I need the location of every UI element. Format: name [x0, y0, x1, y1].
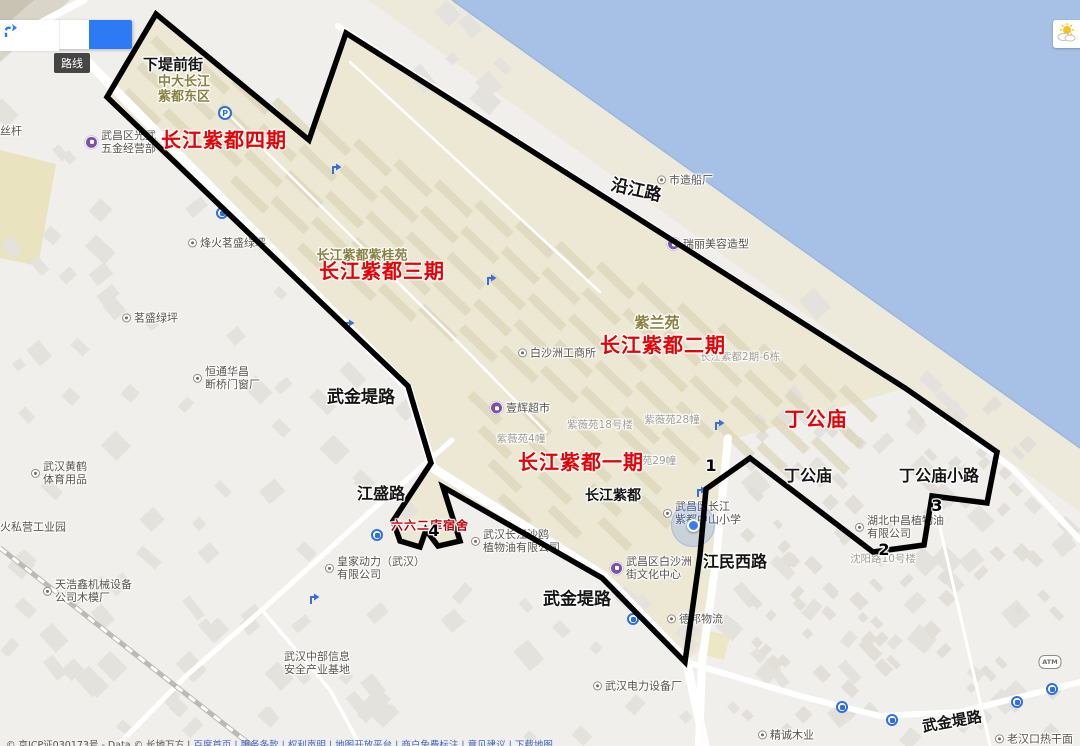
directions-tooltip: 路线 — [54, 53, 90, 73]
map-canvas[interactable]: 中大长江 紫都东区长江紫都紫桂苑紫兰苑长江紫都2期-6栋紫薇苑18号楼紫薇苑28… — [0, 0, 1080, 746]
search-bar — [0, 20, 132, 49]
boundary-annotation — [0, 0, 1080, 746]
weather-widget[interactable] — [1053, 20, 1080, 48]
map-attribution: © 京ICP证030173号 - Data © 长地万方 | 百度首页 | 服务… — [6, 737, 553, 746]
attribution-links[interactable]: 百度首页 | 服务条款 | 权利声明 | 地图开放平台 | 商户免费标注 | 意… — [193, 740, 552, 746]
copyright-text: © 京ICP证030173号 - Data © 长地万方 | — [6, 740, 190, 746]
search-button[interactable] — [89, 20, 132, 49]
directions-button[interactable] — [59, 20, 89, 49]
